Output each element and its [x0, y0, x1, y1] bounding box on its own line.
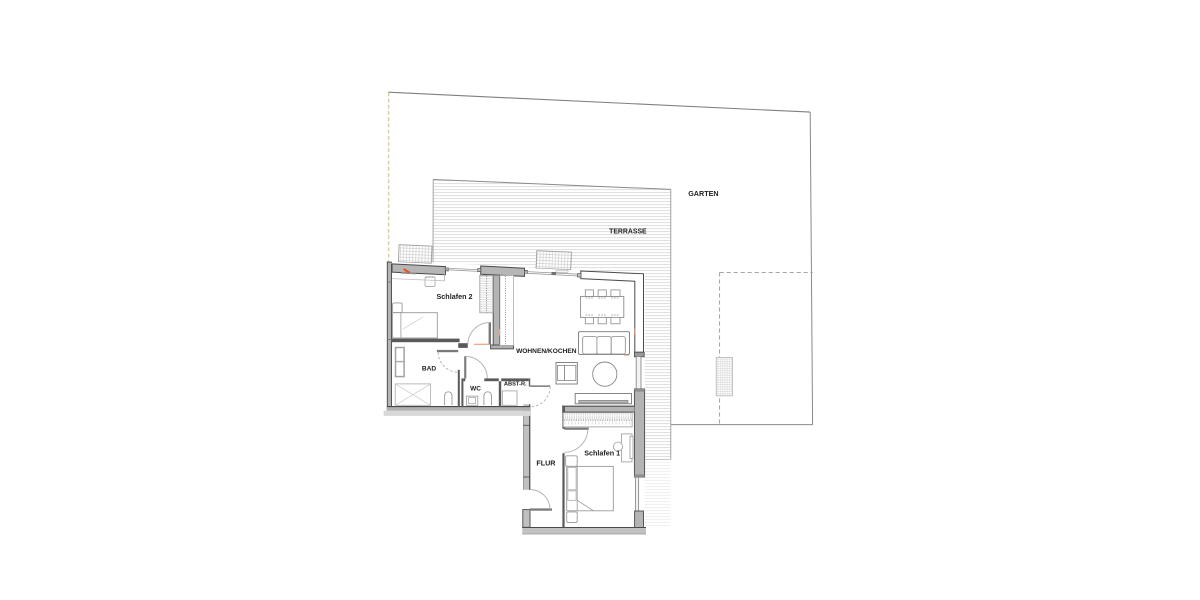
svg-text:GARTEN: GARTEN	[688, 189, 718, 198]
svg-text:TERRASSE: TERRASSE	[609, 228, 647, 235]
svg-text:ABST-R.: ABST-R.	[504, 381, 527, 387]
svg-text:BAD: BAD	[422, 365, 437, 372]
svg-text:WC: WC	[470, 385, 481, 392]
svg-text:Schlafen 1: Schlafen 1	[584, 448, 620, 457]
svg-text:WOHNEN/KOCHEN: WOHNEN/KOCHEN	[516, 348, 577, 355]
svg-text:Schlafen 2: Schlafen 2	[437, 292, 473, 301]
svg-text:FLUR: FLUR	[536, 459, 556, 468]
